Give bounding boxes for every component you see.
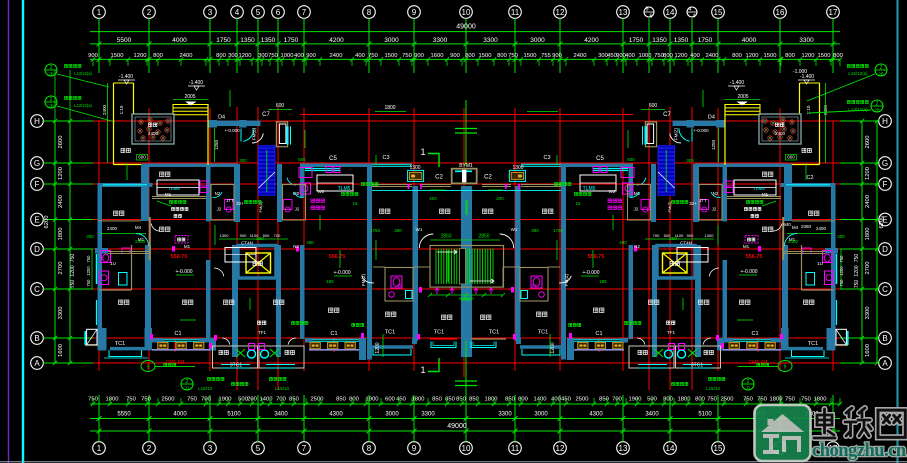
svg-text:1750: 1750 [370,228,381,233]
svg-text:556.75: 556.75 [171,254,188,260]
svg-text:H: H [882,117,888,126]
svg-text:1200: 1200 [675,53,688,59]
svg-text:8: 8 [367,8,372,17]
svg-text:-1.400: -1.400 [189,80,203,86]
svg-text:1: 1 [97,444,102,453]
svg-text:600: 600 [385,397,395,403]
svg-text:J2: J2 [295,207,300,212]
svg-text:1750: 1750 [284,37,299,44]
svg-text:1800: 1800 [865,228,871,241]
svg-text:3300: 3300 [799,37,814,44]
svg-text:CT4N: CT4N [241,241,253,246]
svg-text:2: 2 [880,65,883,71]
svg-text:2400: 2400 [107,226,118,231]
svg-text:12: 12 [556,8,565,17]
svg-text:3300: 3300 [483,37,498,44]
svg-text:6200: 6200 [44,216,50,229]
svg-text:14: 14 [666,444,675,453]
svg-text:700: 700 [274,233,281,238]
svg-text:2400: 2400 [102,104,107,115]
svg-text:D: D [34,245,40,254]
svg-text:11: 11 [511,444,520,453]
svg-text:1800: 1800 [58,228,64,241]
svg-text:750: 750 [86,279,91,287]
svg-text:FM(Z): FM(Z) [674,127,679,140]
svg-text:2400: 2400 [816,226,827,231]
svg-text:10: 10 [462,444,471,453]
svg-text:CT4N: CT4N [680,241,692,246]
svg-text:6: 6 [276,8,281,17]
svg-text:1300: 1300 [705,233,715,238]
svg-text:W1: W1 [511,227,518,232]
svg-text:300: 300 [837,234,845,239]
svg-text:+-0.000: +-0.000 [582,270,599,276]
svg-text:1350: 1350 [674,37,689,44]
svg-text:TLM5: TLM5 [168,186,180,191]
svg-text:+-0.000: +-0.000 [175,269,192,275]
svg-text:C5: C5 [329,156,337,162]
svg-text:2400: 2400 [135,239,146,244]
svg-text:C1: C1 [595,331,602,337]
svg-text:556.75: 556.75 [329,254,346,260]
svg-text:F: F [883,180,888,189]
svg-text:2360: 2360 [801,224,812,229]
svg-text:TC1: TC1 [489,330,499,336]
svg-text:1: 1 [420,365,425,375]
svg-text:850: 850 [505,397,515,403]
svg-text:1200: 1200 [239,53,252,59]
svg-text:L13/12(a): L13/12(a) [74,71,93,76]
svg-text:750: 750 [839,255,844,263]
svg-text:+-0.000: +-0.000 [333,270,350,276]
svg-text:3: 3 [208,8,213,17]
svg-text:2: 2 [50,65,53,71]
svg-text:2400: 2400 [180,53,193,59]
svg-text:1: 1 [420,147,425,157]
svg-text:4: 4 [235,8,240,17]
svg-text:600: 600 [787,155,795,160]
svg-text:800: 800 [695,397,705,403]
svg-text:3400: 3400 [274,412,288,418]
svg-text:TF1: TF1 [258,330,266,335]
svg-text:1600: 1600 [865,344,871,357]
svg-text:2B: 2B [48,72,54,77]
svg-text:750: 750 [70,254,76,263]
svg-text:3300: 3300 [865,307,871,320]
svg-text:200: 200 [496,196,504,201]
svg-text:L13/12(a): L13/12(a) [74,103,93,108]
svg-text:L15/13: L15/13 [275,386,289,391]
svg-text:1400: 1400 [534,397,547,403]
svg-text:13: 13 [619,444,628,453]
svg-text:+-0.000: +-0.000 [740,269,757,275]
svg-text:2400: 2400 [58,195,64,208]
svg-text:1800: 1800 [412,397,425,403]
svg-text:2500: 2500 [576,397,589,403]
svg-text:1600: 1600 [58,344,64,357]
svg-text:1300: 1300 [409,165,420,171]
svg-text:14: 14 [666,8,675,17]
svg-text:800: 800 [153,53,163,59]
svg-text:1: 1 [97,8,102,17]
svg-text:C: C [34,285,40,294]
svg-text:FM(Z): FM(Z) [564,273,569,286]
svg-text:300: 300 [686,158,694,163]
svg-text:J2: J2 [634,207,639,212]
svg-text:15: 15 [714,444,723,453]
svg-text:1200: 1200 [70,265,76,276]
svg-text:3000: 3000 [530,37,545,44]
svg-text:C: C [882,285,888,294]
svg-text:800: 800 [663,397,673,403]
svg-text:750: 750 [801,397,811,403]
svg-text:1500: 1500 [479,53,492,59]
svg-text:1200: 1200 [839,266,844,276]
svg-text:1600: 1600 [431,53,444,59]
svg-text:1200: 1200 [86,266,91,276]
svg-text:750: 750 [839,279,844,287]
svg-text:1500: 1500 [385,53,398,59]
svg-text:5100: 5100 [698,412,712,418]
svg-text:H: H [34,117,40,126]
svg-text:C1: C1 [751,331,758,337]
svg-text:2400: 2400 [330,53,343,59]
svg-text:TC1: TC1 [538,330,548,336]
svg-text:1U: 1U [817,261,823,266]
svg-text:J1: J1 [746,386,751,391]
svg-text:900: 900 [88,53,98,59]
svg-text:E: E [34,215,39,224]
svg-text:700: 700 [276,397,286,403]
svg-text:2B: 2B [874,108,880,113]
svg-text:49000: 49000 [447,423,467,430]
svg-text:2400: 2400 [148,131,159,136]
svg-text:3TC1: 3TC1 [230,363,242,369]
svg-text:2400: 2400 [865,195,871,208]
svg-text:F: F [35,180,40,189]
svg-text:-1.000: -1.000 [793,69,807,75]
svg-text:3300: 3300 [421,412,435,418]
svg-text:380: 380 [531,228,539,233]
svg-text:chongzhu.cn: chongzhu.cn [812,441,907,461]
svg-text:300: 300 [86,234,94,239]
svg-text:1750: 1750 [629,37,644,44]
svg-text:2: 2 [876,101,879,107]
svg-text:4: 4 [688,7,691,13]
svg-text:TF1: TF1 [667,330,675,335]
svg-text:JTT: JTT [699,198,707,203]
svg-text:900: 900 [552,53,562,59]
svg-text:4: 4 [692,14,695,20]
svg-text:2500: 2500 [311,397,324,403]
svg-text:15: 15 [352,201,358,206]
svg-text:G: G [882,159,888,168]
svg-text:3300: 3300 [58,307,64,320]
svg-text:1200: 1200 [550,342,556,353]
svg-text:1000: 1000 [639,53,652,59]
svg-text:5: 5 [256,8,261,17]
svg-text:2B: 2B [878,72,884,77]
svg-text:2400: 2400 [706,53,719,59]
svg-text:750: 750 [268,53,278,59]
svg-text:3TC1: 3TC1 [691,363,703,369]
svg-text:900: 900 [240,233,247,238]
svg-text:600: 600 [138,155,146,160]
svg-text:800: 800 [465,53,475,59]
svg-text:1250: 1250 [214,139,219,150]
svg-text:12: 12 [556,444,565,453]
svg-text:300: 300 [239,158,247,163]
svg-text:1750: 1750 [698,37,713,44]
svg-text:380: 380 [394,228,402,233]
svg-text:400: 400 [690,53,700,59]
svg-text:16: 16 [776,8,785,17]
svg-text:D4: D4 [708,114,715,120]
svg-text:C3: C3 [382,155,389,161]
svg-text:W1: W1 [416,227,423,232]
svg-text:9: 9 [784,365,787,371]
svg-text:750: 750 [141,397,151,403]
svg-text:2400: 2400 [775,131,786,136]
svg-text:C1: C1 [330,331,337,337]
svg-text:FM(Z): FM(Z) [258,201,263,213]
svg-text:750: 750 [86,255,91,263]
svg-text:2600: 2600 [58,136,64,149]
svg-text:G: G [34,159,40,168]
svg-text:1900: 1900 [219,397,232,403]
svg-text:3400: 3400 [645,412,659,418]
svg-text:850: 850 [432,397,442,403]
svg-text:N2: N2 [293,244,299,249]
svg-text:1350: 1350 [652,37,667,44]
svg-text:2B: 2B [48,104,54,109]
svg-text:C5: C5 [596,156,604,162]
svg-text:900: 900 [450,53,460,59]
svg-text:260: 260 [669,236,677,241]
svg-text:J1: J1 [185,386,190,391]
svg-text:3: 3 [208,444,213,453]
svg-text:C2: C2 [435,175,443,181]
svg-text:1200: 1200 [58,167,64,180]
svg-text:15: 15 [714,8,723,17]
svg-text:5: 5 [256,444,261,453]
svg-text:1200: 1200 [865,167,871,180]
svg-text:2: 2 [147,444,152,453]
svg-text:C7: C7 [663,112,671,118]
svg-text:185: 185 [599,279,607,284]
svg-text:4300: 4300 [329,412,343,418]
svg-text:1350: 1350 [261,37,276,44]
svg-text:600: 600 [276,103,285,109]
svg-text:TLM5: TLM5 [583,186,596,192]
svg-text:W2: W2 [609,189,616,194]
svg-text:D: D [882,245,888,254]
svg-text:800: 800 [497,53,507,59]
svg-text:10: 10 [462,8,471,17]
svg-text:4000: 4000 [742,37,757,44]
svg-text:750: 750 [368,53,378,59]
svg-text:1200: 1200 [854,265,860,276]
svg-text:1200: 1200 [375,342,381,353]
svg-text:3300: 3300 [498,412,512,418]
svg-text:N2: N2 [634,244,640,249]
svg-text:1750: 1750 [216,37,231,44]
svg-text:1300: 1300 [512,165,523,171]
svg-text:17: 17 [829,8,838,17]
svg-text:9: 9 [645,7,648,13]
svg-text:C2: C2 [806,175,813,181]
svg-text:X3: X3 [396,283,402,288]
svg-text:1400: 1400 [260,397,273,403]
svg-text:C7: C7 [262,112,270,118]
svg-text:L15/13: L15/13 [706,386,720,391]
svg-text:3000: 3000 [534,412,548,418]
svg-text:9: 9 [147,365,150,371]
svg-text:490: 490 [619,240,627,245]
svg-text:2500: 2500 [162,397,175,403]
svg-text:750: 750 [402,53,412,59]
svg-text:1500: 1500 [524,53,537,59]
svg-text:FM(Z): FM(Z) [252,127,257,140]
svg-text:800: 800 [785,53,795,59]
svg-text:3300: 3300 [433,37,448,44]
svg-text:TC1: TC1 [385,330,395,336]
svg-text:9: 9 [412,8,417,17]
svg-text:2700: 2700 [58,262,64,275]
svg-text:556.75: 556.75 [588,254,605,260]
svg-text:-1.400: -1.400 [730,80,744,86]
svg-text:TLM5: TLM5 [753,186,765,191]
svg-text:4200: 4200 [329,37,344,44]
svg-text:4300: 4300 [589,412,603,418]
svg-text:800: 800 [732,53,742,59]
svg-text:185: 185 [326,279,334,284]
svg-text:FM(Z): FM(Z) [361,273,366,286]
svg-text:4000: 4000 [173,412,187,418]
svg-text:750: 750 [187,397,197,403]
svg-text:2500: 2500 [721,397,734,403]
svg-text:2400: 2400 [574,53,587,59]
svg-text:-1.400: -1.400 [119,74,133,80]
svg-text:B: B [882,334,887,343]
svg-text:A: A [34,359,40,368]
svg-text:260: 260 [256,236,264,241]
svg-text:32+: 32+ [236,201,244,206]
svg-text:1500: 1500 [764,53,777,59]
svg-text:600: 600 [649,103,658,109]
svg-text:5100: 5100 [227,412,241,418]
svg-text:8: 8 [367,444,372,453]
svg-text:1500: 1500 [111,53,124,59]
svg-text:3000: 3000 [384,37,399,44]
svg-text:2700: 2700 [865,262,871,275]
svg-text:1:10: 1:10 [119,105,124,114]
svg-text:L15/12(a): L15/12(a) [848,71,868,76]
svg-text:1350: 1350 [240,37,255,44]
svg-text:400: 400 [355,53,365,59]
svg-text:5500: 5500 [117,37,132,44]
svg-text:49000: 49000 [456,24,476,31]
svg-text:1200: 1200 [134,53,147,59]
svg-text:9: 9 [412,444,417,453]
svg-text:TC1: TC1 [434,330,444,336]
svg-text:6200: 6200 [879,216,885,229]
svg-text:1250: 1250 [711,139,716,150]
svg-text:1500: 1500 [818,53,831,59]
svg-text:+-0.000: +-0.000 [224,128,240,133]
svg-text:W2: W2 [318,189,325,194]
svg-text:TLM5: TLM5 [338,186,351,192]
svg-text:490: 490 [306,240,314,245]
svg-text:11: 11 [511,8,520,17]
svg-text:32+: 32+ [689,201,697,206]
svg-text:1900: 1900 [629,397,642,403]
svg-text:M1: M1 [743,244,750,249]
svg-text:M1: M1 [762,192,769,197]
svg-text:TC1: TC1 [808,341,818,347]
svg-text:M4: M4 [135,225,142,230]
svg-text:M4: M4 [792,225,799,230]
svg-text:750: 750 [854,280,860,289]
svg-text:C3: C3 [543,155,550,161]
svg-text:5550: 5550 [117,412,131,418]
svg-text:3000: 3000 [385,412,399,418]
svg-text:C1: C1 [174,331,181,337]
svg-text:2: 2 [186,379,189,385]
svg-text:1800: 1800 [384,105,395,111]
svg-text:J2: J2 [217,207,222,212]
svg-text:1800: 1800 [814,397,827,403]
svg-text:M1: M1 [165,192,172,197]
svg-text:750: 750 [70,280,76,289]
svg-text:500: 500 [466,296,474,301]
svg-text:900: 900 [687,233,694,238]
svg-text:D4: D4 [218,114,225,120]
svg-text:850: 850 [456,397,466,403]
svg-text:700: 700 [653,233,660,238]
svg-text:2850: 2850 [440,234,451,240]
svg-text:M1: M1 [184,244,191,249]
svg-text:2850: 2850 [478,234,489,240]
svg-text:7: 7 [302,444,307,453]
svg-text:13: 13 [619,8,628,17]
svg-text:JTT: JTT [226,198,234,203]
svg-text:1900: 1900 [366,397,379,403]
svg-text:600: 600 [627,157,635,162]
svg-text:1000: 1000 [281,53,294,59]
svg-text:J2: J2 [712,207,717,212]
svg-text:940: 940 [783,222,791,227]
svg-text:850: 850 [469,397,479,403]
svg-text:1750: 1750 [553,228,564,233]
svg-text:750: 750 [854,254,860,263]
svg-text:600: 600 [298,157,306,162]
svg-text:1800: 1800 [770,397,783,403]
svg-text:755: 755 [541,53,551,59]
svg-text:1800: 1800 [678,397,691,403]
svg-text:B: B [34,334,39,343]
svg-text:+-0.000: +-0.000 [693,128,709,133]
svg-text:4200: 4200 [584,37,599,44]
svg-text:C2: C2 [484,175,492,181]
svg-text:L15/13: L15/13 [198,386,212,391]
svg-text:TC1: TC1 [115,341,125,347]
svg-text:2400: 2400 [788,239,799,244]
svg-text:1200: 1200 [802,53,815,59]
svg-text:6: 6 [649,14,652,20]
svg-text:2600: 2600 [865,136,871,149]
svg-text:2: 2 [50,97,53,103]
